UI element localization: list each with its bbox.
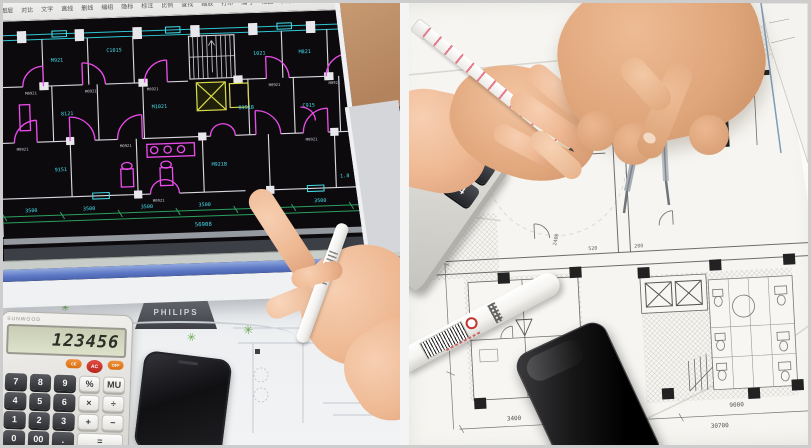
dimension-total: 56908 — [195, 222, 212, 228]
key-divide: ÷ — [102, 395, 124, 412]
svg-text:30700: 30700 — [711, 422, 730, 430]
cad-menu-item: 比例 — [161, 3, 173, 9]
right-hand-knuckle — [689, 115, 729, 155]
key-multiply: × — [78, 394, 100, 411]
svg-text:3500: 3500 — [141, 204, 154, 210]
svg-text:3400: 3400 — [507, 415, 522, 423]
svg-text:3500: 3500 — [314, 198, 327, 204]
cad-menu-item: 删线 — [81, 3, 93, 12]
key-9: 9 — [54, 375, 76, 392]
cad-menu-item: 文字 — [41, 4, 53, 13]
left-photo-cad-workstation: ✳ ✳ ✳ ✳ PHILIPS 图层 对比 文字 直线 删线 编组 隐标 标注 … — [3, 3, 400, 445]
smartphone — [133, 350, 232, 445]
svg-text:C1015: C1015 — [106, 48, 122, 54]
cad-menu-item: 对比 — [21, 5, 33, 14]
svg-text:M921: M921 — [51, 58, 64, 64]
svg-text:M1021: M1021 — [152, 104, 168, 110]
right-hand-knuckle — [577, 111, 617, 151]
svg-text:M0921: M0921 — [17, 147, 30, 152]
svg-text:M0921: M0921 — [85, 88, 98, 93]
key-dot: . — [52, 432, 74, 445]
cad-menu-item: 编组 — [101, 3, 113, 11]
key-6: 6 — [53, 394, 75, 411]
cad-menu-item: 标注 — [141, 3, 153, 10]
bathroom-block — [708, 275, 798, 389]
key-3: 3 — [53, 413, 75, 430]
cad-menu-item: 隐标 — [121, 3, 133, 11]
cad-menu-item: 直线 — [61, 3, 73, 12]
svg-text:9000: 9000 — [729, 401, 744, 409]
svg-text:3500: 3500 — [25, 208, 38, 214]
key-7: 7 — [5, 373, 27, 390]
svg-text:2400: 2400 — [552, 233, 560, 246]
cad-menu-item: 帮助 — [301, 3, 313, 4]
svg-text:9151: 9151 — [55, 167, 68, 173]
cad-menu-item: 视图 — [261, 3, 273, 6]
calculator-display: 123456 — [6, 324, 127, 358]
key-2: 2 — [28, 412, 50, 429]
ce-key: CE — [66, 359, 82, 369]
svg-text:M821: M821 — [298, 49, 311, 55]
cad-menu-item: 图层 — [3, 5, 13, 14]
key-0: 0 — [3, 430, 25, 445]
svg-text:1021: 1021 — [253, 51, 266, 57]
svg-text:8121: 8121 — [61, 111, 74, 117]
calculator-display-value: 123456 — [52, 331, 120, 353]
svg-text:M0921: M0921 — [328, 80, 341, 85]
desk-calculator: SUNWOOD 123456 CE AC OFF 7 8 9 % MU 4 5 … — [3, 311, 133, 445]
svg-text:M0921: M0921 — [147, 86, 160, 91]
calculator-power-keys: CE AC OFF — [5, 357, 123, 374]
cad-menu-item: 打印 — [221, 3, 233, 7]
photo-collage: ✳ ✳ ✳ ✳ PHILIPS 图层 对比 文字 直线 删线 编组 隐标 标注 … — [0, 0, 811, 448]
svg-text:C915: C915 — [302, 103, 315, 109]
key-5: 5 — [29, 393, 51, 410]
svg-text:3500: 3500 — [83, 206, 96, 212]
key-8: 8 — [29, 374, 51, 391]
phone-speaker — [178, 360, 198, 365]
key-equals: = — [77, 432, 124, 445]
svg-text:200: 200 — [634, 243, 643, 249]
key-mu: MU — [103, 376, 125, 393]
svg-text:520: 520 — [588, 246, 597, 252]
cad-menu-item: 关于 — [281, 3, 293, 5]
svg-text:M0921: M0921 — [306, 136, 319, 141]
key-00: 00 — [27, 431, 49, 445]
ac-key: AC — [86, 360, 102, 374]
angled-sheet-top-right — [761, 3, 808, 203]
svg-text:3500: 3500 — [198, 202, 211, 208]
calculator-keypad: 7 8 9 % MU 4 5 6 × ÷ 1 2 3 + − 0 00 . = — [3, 373, 125, 445]
svg-text:1.8: 1.8 — [340, 173, 350, 179]
svg-text:M0921: M0921 — [153, 198, 166, 203]
key-4: 4 — [4, 392, 26, 409]
key-minus: − — [102, 414, 124, 431]
svg-text:M921B: M921B — [211, 162, 227, 168]
collage-divider — [400, 3, 409, 445]
svg-text:M0921: M0921 — [269, 82, 282, 87]
right-photo-blueprint-work: 3400 9000 30700 520 200 2400 0 0 — [409, 3, 808, 445]
svg-text:M0921: M0921 — [120, 143, 133, 148]
svg-text:8151B: 8151B — [238, 105, 254, 111]
svg-text:M0921: M0921 — [25, 90, 38, 95]
key-plus: + — [77, 413, 99, 430]
cad-menu-item: 编号 — [241, 3, 253, 7]
cad-menu-item: 缩放 — [201, 3, 213, 8]
key-1: 1 — [3, 411, 25, 428]
off-key: OFF — [107, 360, 123, 370]
key-percent: % — [79, 375, 101, 392]
cad-menu-item: 查找 — [181, 3, 193, 9]
monitor-brand-label: PHILIPS — [153, 308, 198, 317]
